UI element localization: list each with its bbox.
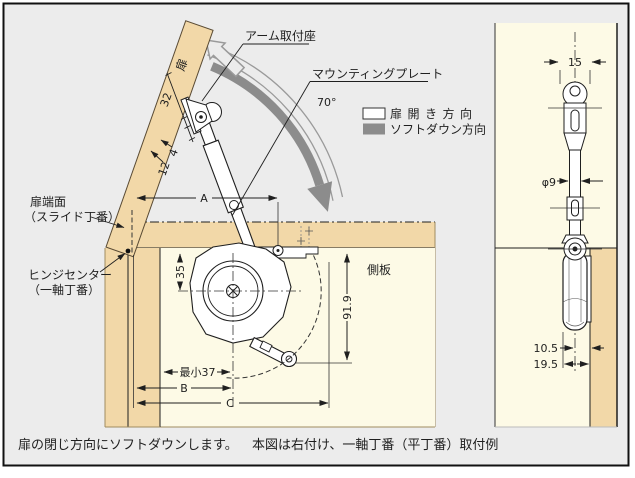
legend-soft-swatch xyxy=(363,124,385,135)
body-capsule xyxy=(563,252,587,330)
legend-open-label: 扉開き方向 xyxy=(390,106,478,121)
angle-70-label: 70° xyxy=(317,96,337,109)
dim-15-label: 15 xyxy=(568,56,582,69)
dim-91-9-label: 91.9 xyxy=(341,295,354,320)
page: 扉 xyxy=(0,0,635,478)
caption-right: 本図は右付け、一軸丁番（平丁番）取付例 xyxy=(252,438,498,453)
dim-dia9-label: φ9 xyxy=(542,176,556,189)
dim-35-label: 35 xyxy=(174,265,187,279)
dim-min37-label: 最小37 xyxy=(180,366,216,379)
hinge-center-label-2: （一軸丁番） xyxy=(28,283,100,297)
arm-seat-label: アーム取付座 xyxy=(245,28,316,43)
rod xyxy=(570,150,581,200)
hinge-center-label-1: ヒンジセンター xyxy=(28,268,112,282)
cabinet-front-strip xyxy=(105,248,160,427)
mounting-plate-label: マウンティングプレート xyxy=(312,67,443,81)
legend-open-swatch xyxy=(363,108,385,119)
side-panel-label: 側板 xyxy=(367,263,391,277)
dim-19-5-label: 19.5 xyxy=(534,358,559,371)
dim-a-label: A xyxy=(200,192,208,205)
side-view-wood-strip xyxy=(590,248,617,427)
caption-left: 扉の閉じ方向にソフトダウンします。 xyxy=(18,437,238,453)
dim-10-5-label: 10.5 xyxy=(534,342,559,355)
legend-soft-label: ソフトダウン方向 xyxy=(390,122,486,137)
side-view: 15 φ9 10.5 19.5 xyxy=(495,23,617,427)
hinge-point xyxy=(126,249,131,254)
door-end-face-label-1: 扉端面 xyxy=(30,195,66,209)
dim-c-label: C xyxy=(226,397,234,410)
dim-b-label: B xyxy=(180,382,188,395)
technical-diagram: 扉 xyxy=(0,0,635,478)
